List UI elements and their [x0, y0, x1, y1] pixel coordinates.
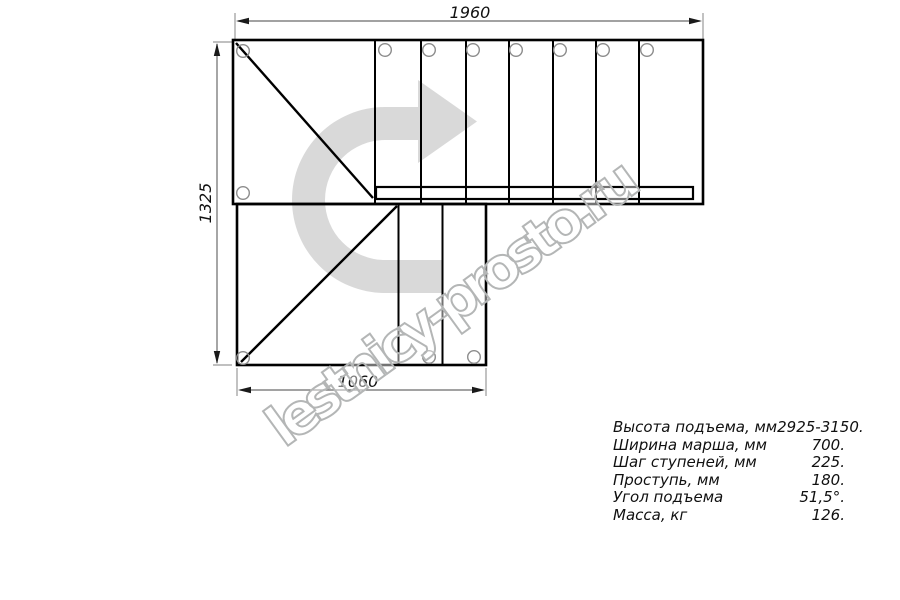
mounting-hole: [423, 44, 436, 57]
mounting-hole: [468, 351, 481, 364]
specs-table: Высота подъема, мм 2925-3150. Ширина мар…: [613, 419, 845, 524]
mounting-hole: [237, 187, 250, 200]
mounting-hole: [641, 44, 654, 57]
mounting-hole: [554, 44, 567, 57]
spec-row: Угол подъема 51,5°.: [613, 489, 845, 507]
spec-value: 2925-3150.: [777, 419, 864, 437]
spec-row: Высота подъема, мм 2925-3150.: [613, 419, 845, 437]
arrowhead-left-icon: [238, 387, 251, 393]
spec-value: 126.: [812, 507, 845, 525]
arrowhead-right-icon: [472, 387, 485, 393]
spec-value: 51,5°.: [799, 489, 845, 507]
mounting-hole: [237, 352, 250, 365]
spec-row: Масса, кг 126.: [613, 507, 845, 525]
spec-label: Проступь, мм: [613, 472, 720, 490]
mounting-hole: [379, 44, 392, 57]
arrowhead-up-icon: [214, 43, 220, 56]
spec-label: Ширина марша, мм: [613, 437, 767, 455]
spec-label: Шаг ступеней, мм: [613, 454, 757, 472]
dimension-left-height: 1325: [196, 42, 232, 365]
mounting-hole: [597, 44, 610, 57]
spec-row: Проступь, мм 180.: [613, 472, 845, 490]
stringer-strip: [376, 187, 693, 199]
spec-label: Угол подъема: [613, 489, 723, 507]
spec-label: Масса, кг: [613, 507, 687, 525]
mounting-hole: [467, 44, 480, 57]
mounting-hole: [510, 44, 523, 57]
spec-value: 225.: [812, 454, 845, 472]
spec-row: Шаг ступеней, мм 225.: [613, 454, 845, 472]
arrowhead-right-icon: [689, 18, 702, 24]
dimension-top-value: 1960: [450, 3, 491, 22]
spec-value: 180.: [812, 472, 845, 490]
spec-value: 700.: [812, 437, 845, 455]
spec-label: Высота подъема, мм: [613, 419, 777, 437]
arrowhead-down-icon: [214, 351, 220, 364]
spec-row: Ширина марша, мм 700.: [613, 437, 845, 455]
dimension-top-width: 1960: [235, 3, 703, 39]
stair-plan-page: 1960 1325 1060: [0, 0, 900, 600]
arrowhead-left-icon: [236, 18, 249, 24]
dimension-left-value: 1325: [196, 183, 215, 224]
